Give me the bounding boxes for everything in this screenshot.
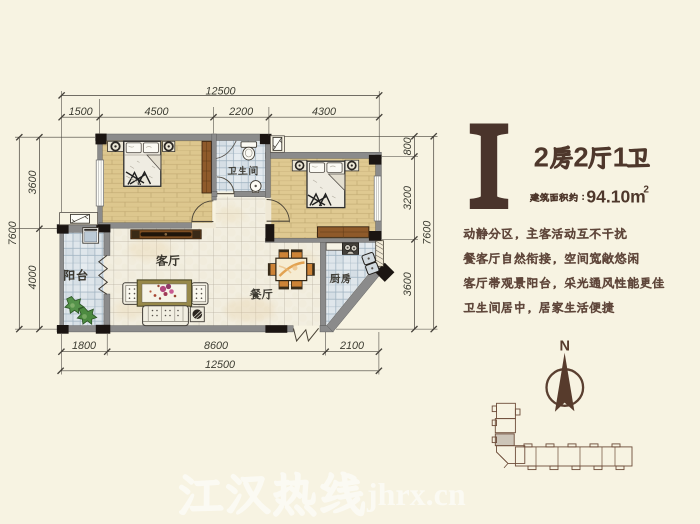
svg-text:2: 2 xyxy=(643,185,649,196)
svg-text:2100: 2100 xyxy=(339,340,364,352)
svg-text:4500: 4500 xyxy=(144,106,168,118)
svg-text:1800: 1800 xyxy=(72,340,96,352)
svg-text:12500: 12500 xyxy=(205,86,235,98)
svg-text:4000: 4000 xyxy=(27,265,39,289)
svg-text:8600: 8600 xyxy=(204,340,228,352)
svg-text:2: 2 xyxy=(534,141,549,172)
svg-text:7600: 7600 xyxy=(421,221,433,245)
svg-text:800: 800 xyxy=(402,137,414,155)
svg-text:1500: 1500 xyxy=(69,106,93,118)
svg-text:3200: 3200 xyxy=(402,186,414,210)
svg-text:12500: 12500 xyxy=(205,359,235,371)
svg-text:4300: 4300 xyxy=(312,106,336,118)
svg-text:7600: 7600 xyxy=(7,221,19,245)
svg-text:94.10m: 94.10m xyxy=(586,187,645,207)
svg-text:3600: 3600 xyxy=(27,170,39,194)
svg-text:jhrx.cn: jhrx.cn xyxy=(366,476,466,512)
svg-text:2200: 2200 xyxy=(228,106,253,118)
svg-text:2: 2 xyxy=(573,141,588,172)
svg-text:3600: 3600 xyxy=(402,272,414,296)
svg-text:1: 1 xyxy=(613,141,628,172)
svg-text:N: N xyxy=(559,339,569,355)
